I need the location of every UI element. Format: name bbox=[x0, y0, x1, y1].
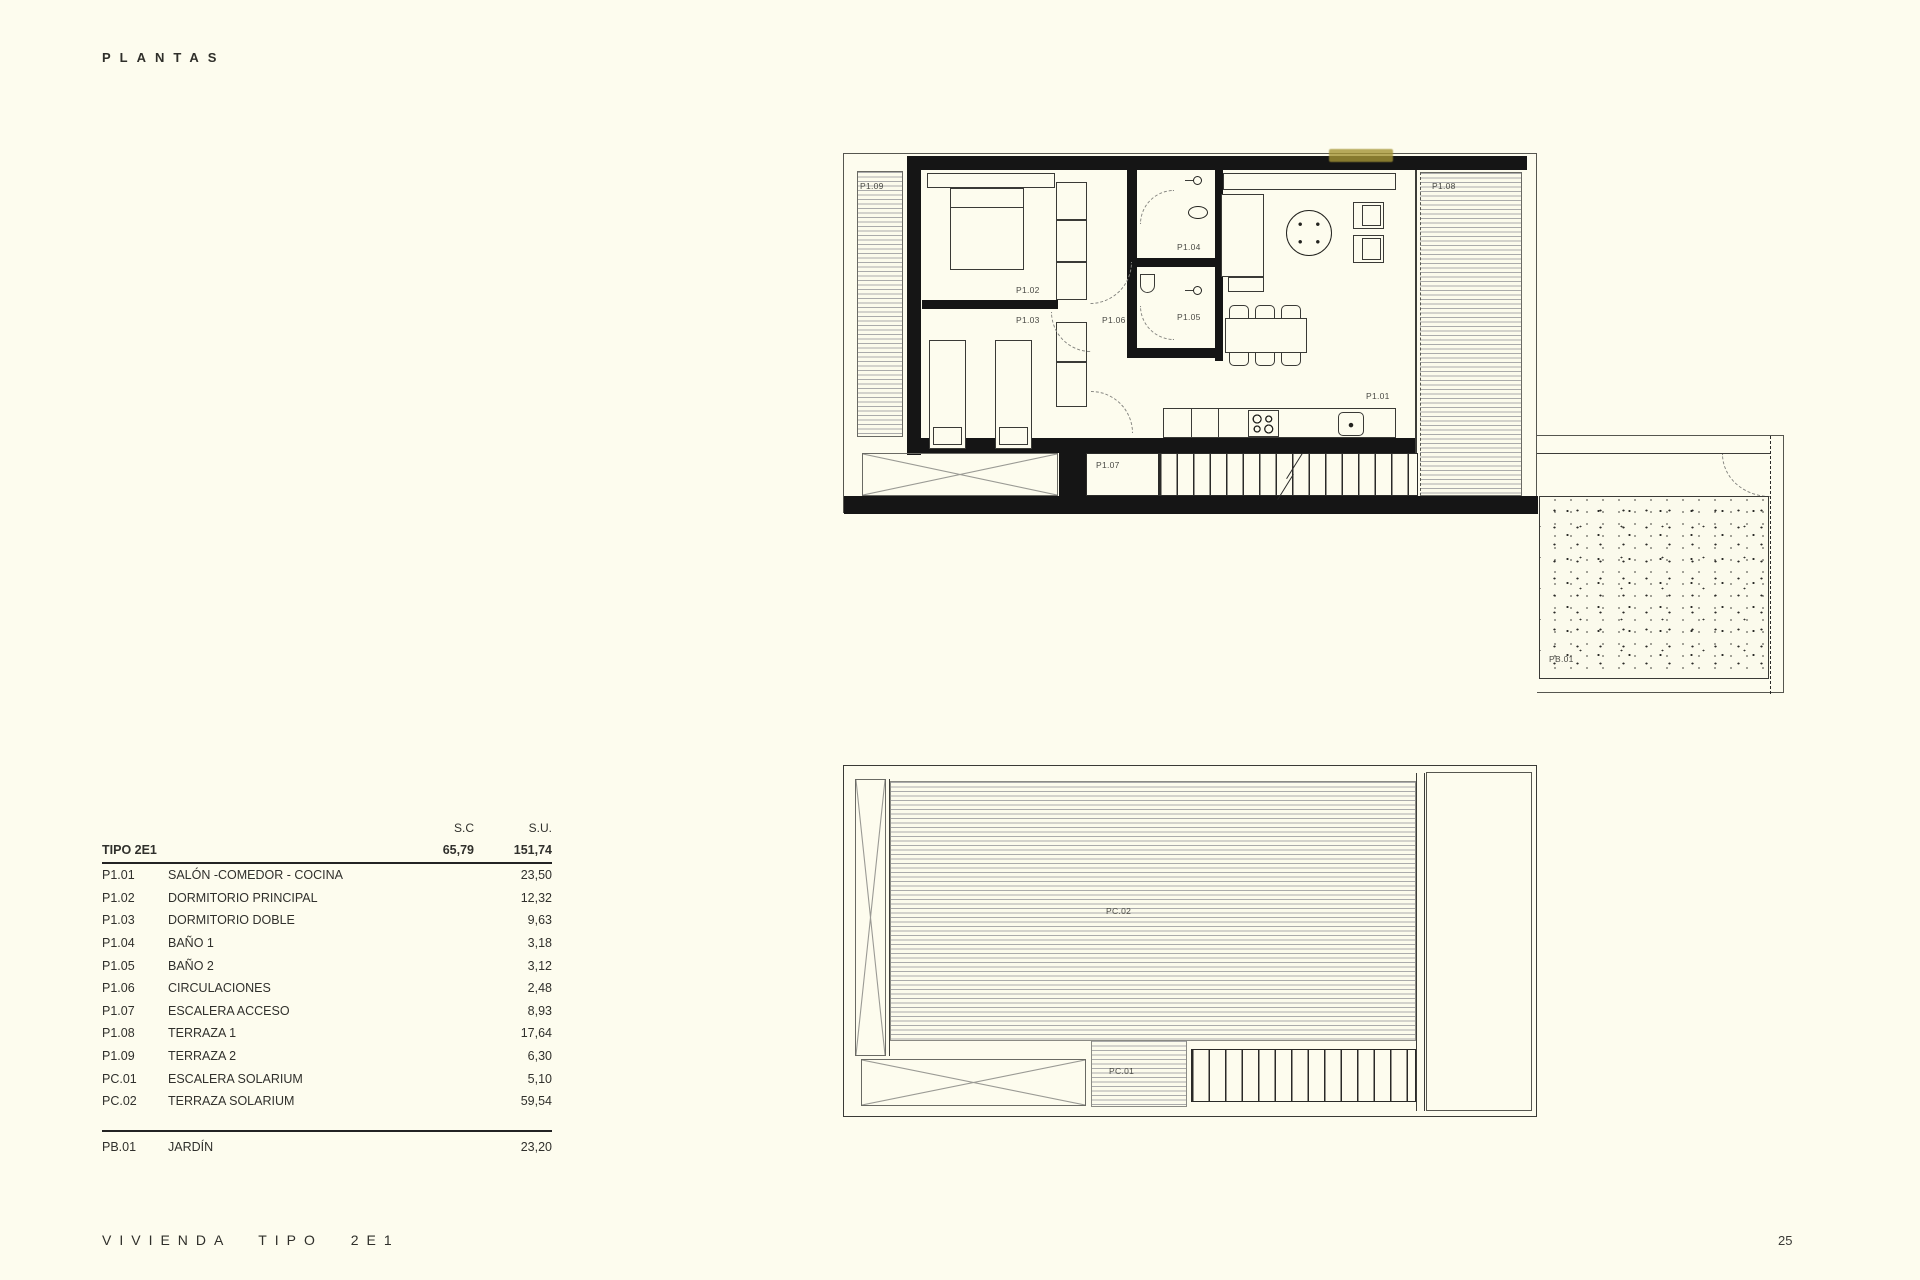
dining-table bbox=[1225, 318, 1307, 353]
floor-plan-solarium: PC.02 PC.01 bbox=[843, 765, 1537, 1117]
row-code: P1.03 bbox=[102, 913, 168, 927]
floor-plan-first-floor: P1.09 P1.02 P1.03 P1.06 P1.04 P1.05 P1.0… bbox=[843, 153, 1537, 513]
row-code: PC.01 bbox=[102, 1072, 168, 1086]
highlight-artifact bbox=[1329, 149, 1393, 162]
parapet-line bbox=[1424, 773, 1425, 1111]
group-su: 151,74 bbox=[474, 843, 552, 857]
table-row: P1.02 DORMITORIO PRINCIPAL 12,32 bbox=[102, 887, 552, 910]
row-code: P1.08 bbox=[102, 1026, 168, 1040]
table-row: P1.07 ESCALERA ACCESO 8,93 bbox=[102, 1000, 552, 1023]
row-name: BAÑO 1 bbox=[168, 936, 404, 950]
table-row: P1.01 SALÓN -COMEDOR - COCINA 23,50 bbox=[102, 864, 552, 887]
table-row: PC.02 TERRAZA SOLARIUM 59,54 bbox=[102, 1090, 552, 1113]
row-code: P1.02 bbox=[102, 891, 168, 905]
room-label-salon: P1.01 bbox=[1366, 391, 1390, 401]
row-name: SALÓN -COMEDOR - COCINA bbox=[168, 868, 404, 882]
row-su: 23,50 bbox=[474, 868, 552, 882]
sofa bbox=[1221, 194, 1264, 277]
sideboard bbox=[1223, 173, 1396, 190]
room-label-jardin: PB.01 bbox=[1549, 654, 1574, 664]
room-label-bano1: P1.04 bbox=[1177, 242, 1201, 252]
dining-chair bbox=[1255, 305, 1275, 319]
counter-divider bbox=[1218, 408, 1219, 438]
row-code: P1.09 bbox=[102, 1049, 168, 1063]
parapet-line bbox=[1416, 773, 1417, 1111]
room-label-terraza1: P1.08 bbox=[1432, 181, 1456, 191]
row-name: BAÑO 2 bbox=[168, 959, 404, 973]
group-sc: 65,79 bbox=[404, 843, 474, 857]
void-cross-box bbox=[855, 779, 886, 1056]
row-code: P1.01 bbox=[102, 868, 168, 882]
row-su: 3,12 bbox=[474, 959, 552, 973]
area-table: S.C S.U. TIPO 2E1 65,79 151,74 P1.01 SAL… bbox=[102, 818, 552, 1160]
table-row: P1.03 DORMITORIO DOBLE 9,63 bbox=[102, 909, 552, 932]
round-table bbox=[1286, 210, 1332, 256]
group-name: TIPO 2E1 bbox=[102, 843, 404, 857]
bed-headboard bbox=[927, 173, 1055, 188]
row-code: P1.06 bbox=[102, 981, 168, 995]
row-name: TERRAZA 1 bbox=[168, 1026, 404, 1040]
table-row: P1.06 CIRCULACIONES 2,48 bbox=[102, 977, 552, 1000]
terrace-1-hatch bbox=[1420, 172, 1522, 496]
wall-bath-west bbox=[1127, 156, 1137, 358]
row-su: 5,10 bbox=[474, 1072, 552, 1086]
table-row-jardin: PB.01 JARDÍN 23,20 bbox=[102, 1130, 552, 1160]
shower-arm bbox=[1185, 180, 1193, 181]
door-swing-arc bbox=[1090, 262, 1132, 304]
wall-above-stairs bbox=[907, 438, 1417, 453]
wall-west bbox=[907, 156, 921, 455]
single-bed bbox=[929, 340, 966, 449]
room-label-escalera: P1.07 bbox=[1096, 460, 1120, 470]
toilet bbox=[1188, 206, 1208, 219]
door-swing-arc bbox=[1722, 454, 1770, 497]
void-cross-box bbox=[861, 1059, 1086, 1106]
staircase-solarium bbox=[1191, 1049, 1416, 1102]
document-page: PLANTAS bbox=[0, 0, 1920, 1280]
row-su: 12,32 bbox=[474, 891, 552, 905]
room-label-dormitorio-doble: P1.03 bbox=[1016, 315, 1040, 325]
garden-area: PB.01 bbox=[1537, 435, 1784, 693]
row-su: 59,54 bbox=[474, 1094, 552, 1108]
solarium-terrace-hatch bbox=[890, 781, 1416, 1041]
room-label-escalera-solarium: PC.01 bbox=[1109, 1066, 1134, 1076]
dining-chair bbox=[1229, 352, 1249, 366]
void-cross-box bbox=[862, 453, 1058, 496]
row-name: DORMITORIO PRINCIPAL bbox=[168, 891, 404, 905]
table-row: PC.01 ESCALERA SOLARIUM 5,10 bbox=[102, 1067, 552, 1090]
sink bbox=[1140, 274, 1155, 293]
room-label-dormitorio-principal: P1.02 bbox=[1016, 285, 1040, 295]
wall-bath-divider bbox=[1132, 258, 1223, 267]
page-number: 25 bbox=[1778, 1233, 1792, 1248]
row-code: PB.01 bbox=[102, 1140, 168, 1154]
armchair bbox=[1353, 235, 1384, 263]
page-title: PLANTAS bbox=[102, 50, 225, 65]
solarium-stair-hatch bbox=[1091, 1041, 1187, 1107]
single-bed bbox=[995, 340, 1032, 449]
shower-head-icon bbox=[1193, 176, 1202, 185]
table-header-row: S.C S.U. bbox=[102, 818, 552, 838]
row-name: ESCALERA ACCESO bbox=[168, 1004, 404, 1018]
shower-head-icon bbox=[1193, 286, 1202, 295]
door-swing-arc bbox=[1140, 190, 1174, 224]
table-row: P1.08 TERRAZA 1 17,64 bbox=[102, 1022, 552, 1045]
wall-stair-pier bbox=[1059, 453, 1086, 496]
sofa-chaise bbox=[1228, 277, 1264, 292]
row-code: P1.04 bbox=[102, 936, 168, 950]
armchair bbox=[1353, 202, 1384, 229]
room-label-circulaciones: P1.06 bbox=[1102, 315, 1126, 325]
row-name: CIRCULACIONES bbox=[168, 981, 404, 995]
room-label-terraza2: P1.09 bbox=[860, 181, 884, 191]
door-swing-arc bbox=[1140, 306, 1174, 340]
shower-arm bbox=[1185, 290, 1193, 291]
row-code: P1.07 bbox=[102, 1004, 168, 1018]
counter-divider bbox=[1191, 408, 1192, 438]
row-su: 8,93 bbox=[474, 1004, 552, 1018]
wall-bedroom-divider bbox=[922, 300, 1058, 309]
row-su: 9,63 bbox=[474, 913, 552, 927]
wardrobe-cell bbox=[1056, 182, 1087, 220]
row-code: P1.05 bbox=[102, 959, 168, 973]
row-su: 2,48 bbox=[474, 981, 552, 995]
row-name: TERRAZA SOLARIUM bbox=[168, 1094, 404, 1108]
wall-bath-south bbox=[1127, 348, 1223, 358]
row-su: 23,20 bbox=[474, 1140, 552, 1154]
sink-icon bbox=[1338, 412, 1364, 436]
col-header-su: S.U. bbox=[474, 821, 552, 835]
dining-chair bbox=[1229, 305, 1249, 319]
row-su: 6,30 bbox=[474, 1049, 552, 1063]
row-su: 17,64 bbox=[474, 1026, 552, 1040]
wall-south-bar bbox=[844, 496, 1538, 514]
row-name: ESCALERA SOLARIUM bbox=[168, 1072, 404, 1086]
table-row: P1.05 BAÑO 2 3,12 bbox=[102, 954, 552, 977]
dining-chair bbox=[1255, 352, 1275, 366]
garden-fence-dashed bbox=[1770, 436, 1771, 694]
table-row: P1.04 BAÑO 1 3,18 bbox=[102, 932, 552, 955]
row-name: DORMITORIO DOBLE bbox=[168, 913, 404, 927]
wardrobe-cell bbox=[1056, 220, 1087, 262]
row-name: JARDÍN bbox=[168, 1140, 404, 1154]
garden-gravel bbox=[1539, 496, 1769, 679]
wardrobe-cell bbox=[1056, 362, 1087, 407]
dining-chair bbox=[1281, 305, 1301, 319]
row-name: TERRAZA 2 bbox=[168, 1049, 404, 1063]
table-row: P1.09 TERRAZA 2 6,30 bbox=[102, 1045, 552, 1068]
terrace-2-hatch bbox=[857, 171, 903, 437]
door-swing-arc bbox=[1091, 391, 1133, 433]
row-su: 3,18 bbox=[474, 936, 552, 950]
roof-right-panel bbox=[1426, 772, 1532, 1111]
cooktop-icon bbox=[1248, 410, 1279, 437]
room-label-bano2: P1.05 bbox=[1177, 312, 1201, 322]
table-group-row: TIPO 2E1 65,79 151,74 bbox=[102, 838, 552, 864]
glass-wall-terrace bbox=[1415, 170, 1417, 496]
double-bed bbox=[950, 188, 1024, 270]
row-code: PC.02 bbox=[102, 1094, 168, 1108]
col-header-sc: S.C bbox=[404, 821, 474, 835]
room-label-terraza-solarium: PC.02 bbox=[1106, 906, 1131, 916]
wardrobe-cell bbox=[1056, 262, 1087, 300]
dining-chair bbox=[1281, 352, 1301, 366]
page-footer-title: VIVIENDA TIPO 2E1 bbox=[102, 1232, 400, 1248]
